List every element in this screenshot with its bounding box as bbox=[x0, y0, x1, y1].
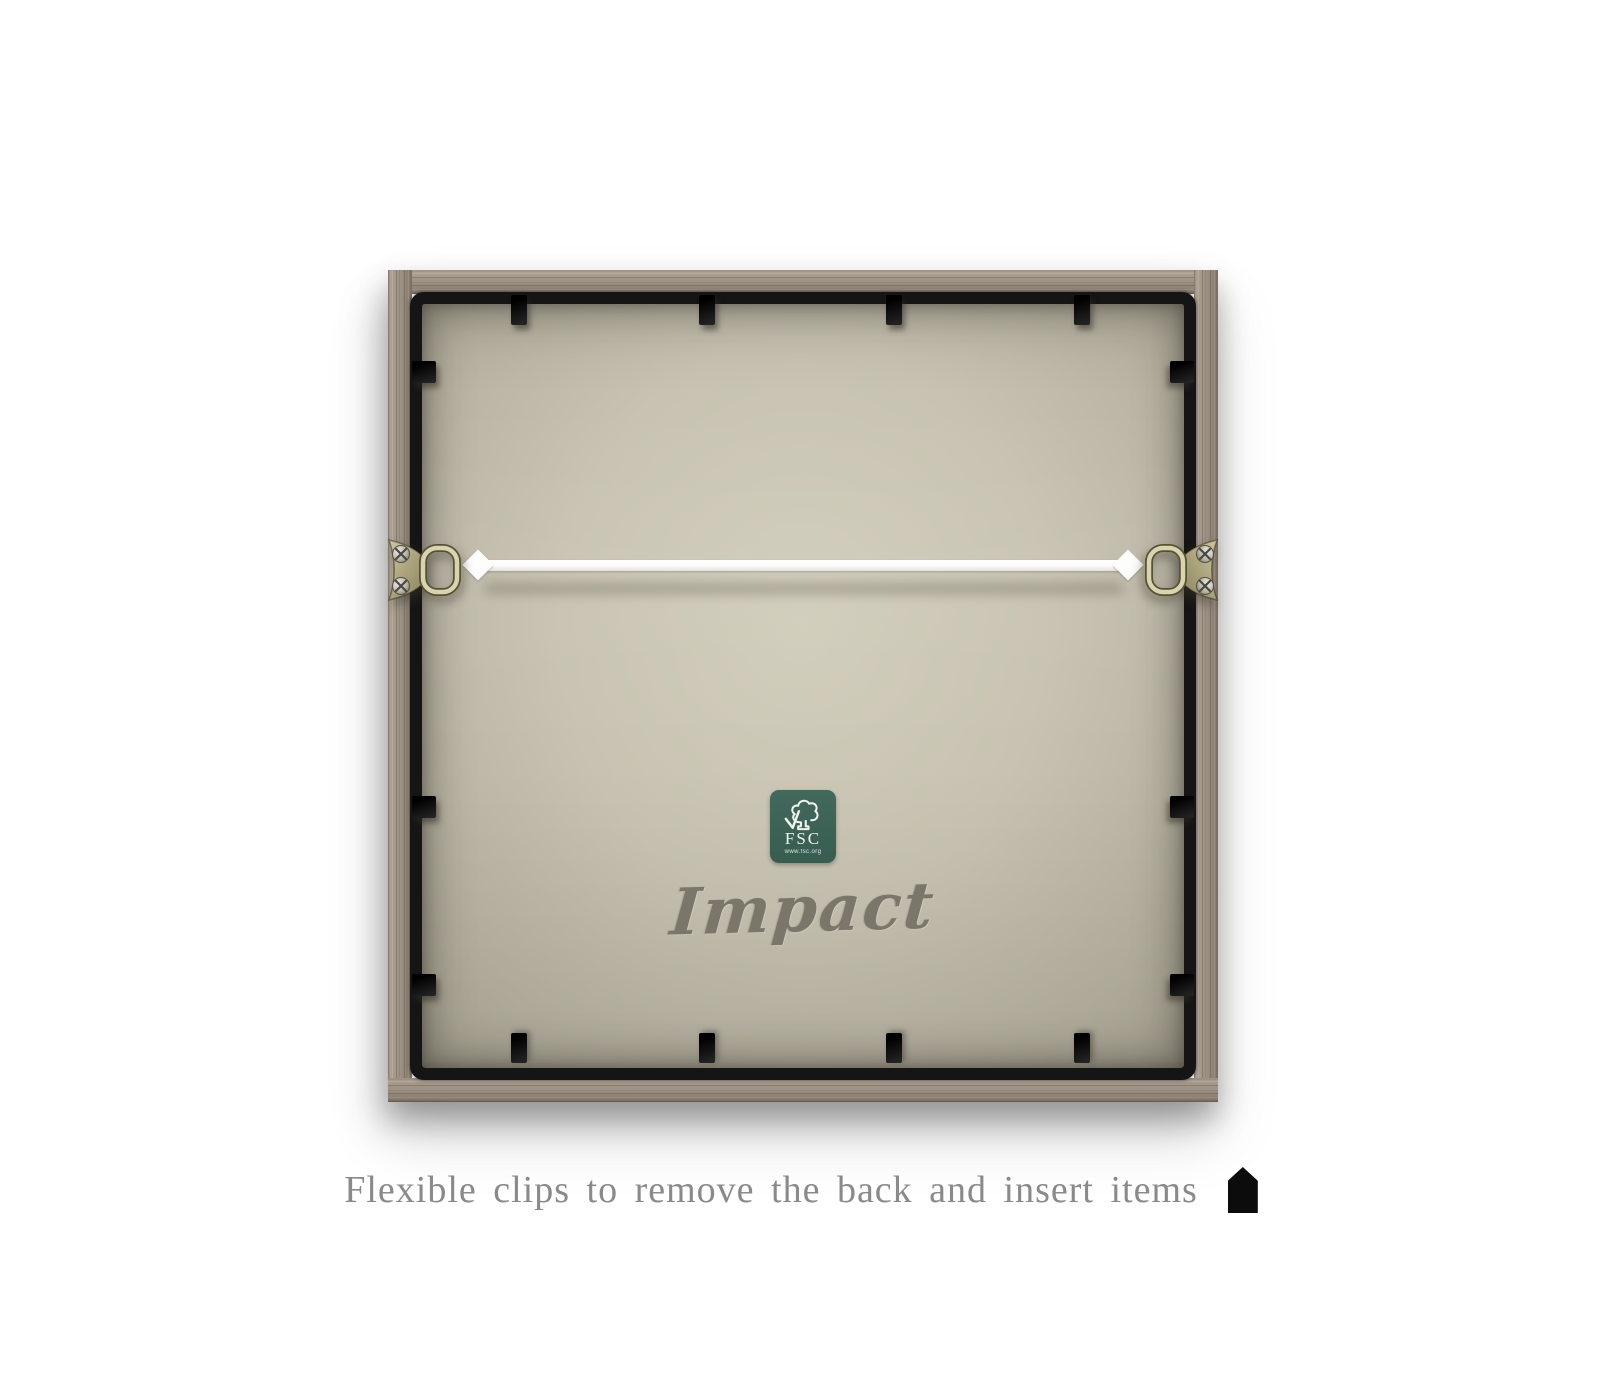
flexible-clip bbox=[886, 1033, 902, 1063]
wood-frame-top bbox=[388, 270, 1218, 294]
flexible-clip bbox=[1170, 974, 1194, 996]
flexible-clip bbox=[511, 1033, 527, 1063]
clip-icon bbox=[1228, 1167, 1258, 1213]
wood-frame-right bbox=[1194, 270, 1218, 1102]
fsc-url: www.fsc.org bbox=[770, 849, 836, 855]
caption-row: Flexible clips to remove the back and in… bbox=[0, 1150, 1602, 1230]
fsc-acronym: FSC bbox=[770, 832, 836, 846]
flexible-clip bbox=[1170, 361, 1194, 383]
picture-frame-back: FSC www.fsc.org Impact bbox=[388, 270, 1218, 1102]
flexible-clip bbox=[511, 295, 527, 325]
flexible-clip bbox=[412, 974, 436, 996]
wood-frame-left bbox=[388, 270, 412, 1102]
hanging-wire bbox=[468, 560, 1138, 571]
flexible-clip bbox=[699, 295, 715, 325]
flexible-clip bbox=[1074, 1033, 1090, 1063]
flexible-clip bbox=[699, 1033, 715, 1063]
product-image: FSC www.fsc.org Impact Flexible clips to… bbox=[0, 0, 1602, 1374]
flexible-clip bbox=[886, 295, 902, 325]
d-ring-icon bbox=[423, 548, 457, 592]
flexible-clip bbox=[1074, 295, 1090, 325]
d-ring-hanger-left bbox=[388, 538, 486, 602]
flexible-clip bbox=[1170, 796, 1194, 818]
wood-frame-bottom bbox=[388, 1078, 1218, 1102]
d-ring-hanger-right bbox=[1120, 538, 1218, 602]
d-ring-icon bbox=[1149, 548, 1183, 592]
fsc-tree-icon bbox=[781, 796, 825, 832]
fsc-label: FSC www.fsc.org bbox=[770, 790, 836, 863]
flexible-clip bbox=[412, 796, 436, 818]
flexible-clip bbox=[412, 361, 436, 383]
wire-shadow bbox=[484, 584, 1124, 593]
inner-metal-frame bbox=[410, 292, 1196, 1080]
caption-text: Flexible clips to remove the back and in… bbox=[344, 1168, 1198, 1212]
